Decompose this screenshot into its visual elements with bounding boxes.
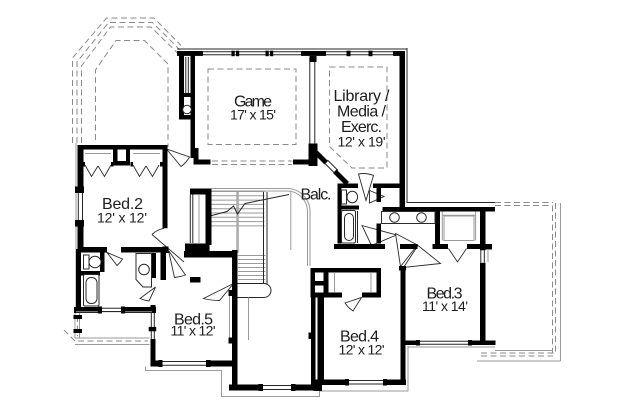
- svg-text:Library /: Library /: [334, 88, 391, 105]
- svg-text:12' x 12': 12' x 12': [339, 342, 385, 358]
- svg-text:17' x 15': 17' x 15': [230, 107, 276, 123]
- svg-text:12' x 12': 12' x 12': [97, 210, 147, 226]
- svg-text:Balc.: Balc.: [301, 187, 332, 204]
- svg-text:11' x 14': 11' x 14': [422, 298, 468, 314]
- svg-text:12' x 19': 12' x 19': [338, 134, 386, 150]
- svg-text:11' x 12': 11' x 12': [171, 323, 216, 339]
- svg-text:Media /: Media /: [337, 104, 387, 121]
